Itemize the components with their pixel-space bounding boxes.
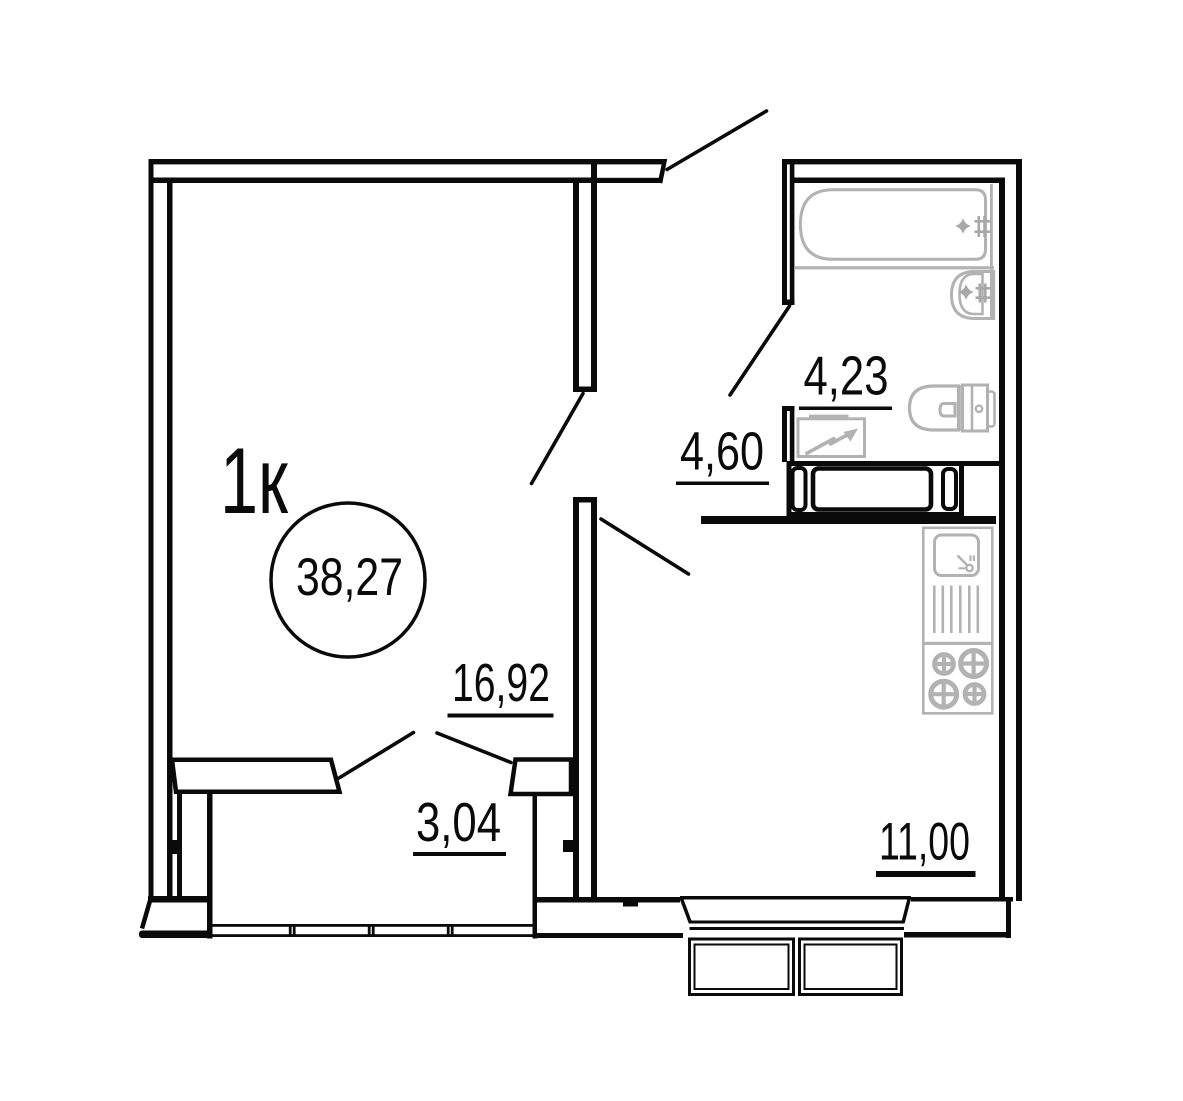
svg-text:4,60: 4,60 [680, 422, 764, 482]
svg-text:4,23: 4,23 [804, 345, 889, 407]
svg-text:16,92: 16,92 [452, 653, 550, 713]
svg-text:38,27: 38,27 [296, 548, 403, 607]
svg-text:1к: 1к [220, 428, 289, 533]
svg-text:3,04: 3,04 [416, 791, 501, 853]
svg-text:11,00: 11,00 [879, 813, 970, 872]
